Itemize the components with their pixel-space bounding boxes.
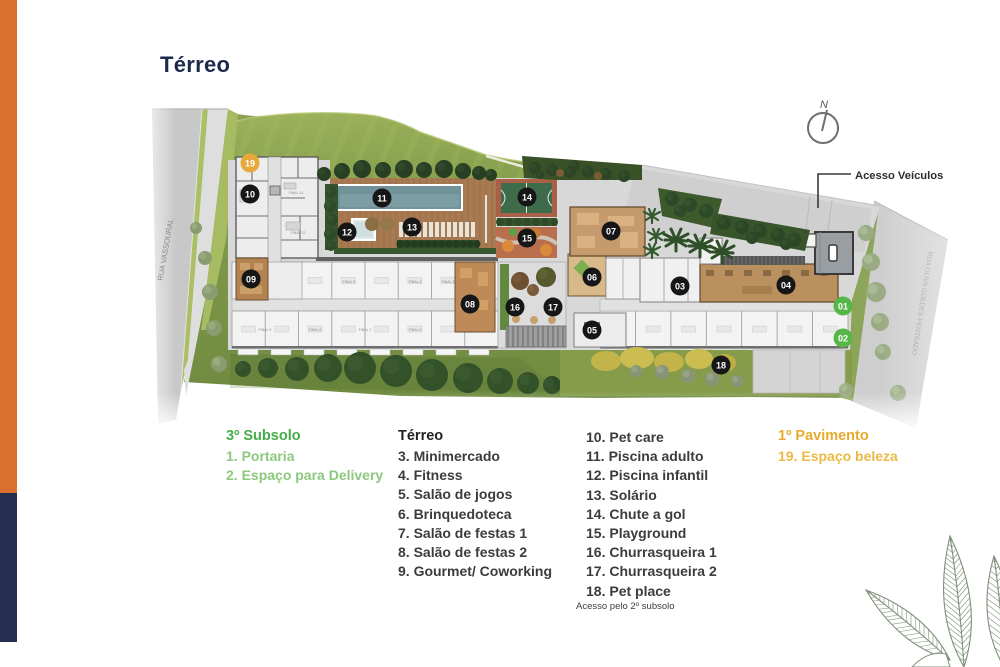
svg-text:19: 19	[245, 158, 255, 168]
svg-text:01: 01	[838, 301, 848, 311]
svg-text:FINAL 6: FINAL 6	[409, 328, 422, 332]
svg-text:FINAL 7: FINAL 7	[359, 328, 372, 332]
svg-text:FINAL 12: FINAL 12	[291, 231, 306, 235]
svg-text:10: 10	[245, 189, 255, 199]
svg-text:07: 07	[606, 226, 616, 236]
svg-text:06: 06	[587, 272, 597, 282]
svg-text:14: 14	[522, 192, 532, 202]
svg-text:FINAL 9: FINAL 9	[259, 328, 272, 332]
svg-text:12: 12	[342, 227, 352, 237]
svg-text:15: 15	[522, 233, 532, 243]
svg-text:FINAL 14: FINAL 14	[289, 191, 304, 195]
svg-text:FINAL 4: FINAL 4	[409, 280, 422, 284]
svg-text:08: 08	[465, 299, 475, 309]
svg-text:FINAL 5: FINAL 5	[343, 280, 356, 284]
svg-text:04: 04	[781, 280, 791, 290]
svg-text:17: 17	[548, 302, 558, 312]
svg-text:11: 11	[377, 193, 387, 203]
svg-text:Acesso Veículos: Acesso Veículos	[855, 170, 943, 182]
svg-text:03: 03	[675, 281, 685, 291]
svg-text:05: 05	[587, 325, 597, 335]
svg-text:FINAL 8: FINAL 8	[309, 328, 322, 332]
svg-text:18: 18	[716, 360, 726, 370]
svg-text:02: 02	[838, 333, 848, 343]
svg-text:13: 13	[407, 222, 417, 232]
svg-text:N: N	[820, 99, 828, 111]
svg-text:16: 16	[510, 302, 520, 312]
svg-text:FINAL 3: FINAL 3	[442, 280, 455, 284]
svg-text:09: 09	[246, 274, 256, 284]
